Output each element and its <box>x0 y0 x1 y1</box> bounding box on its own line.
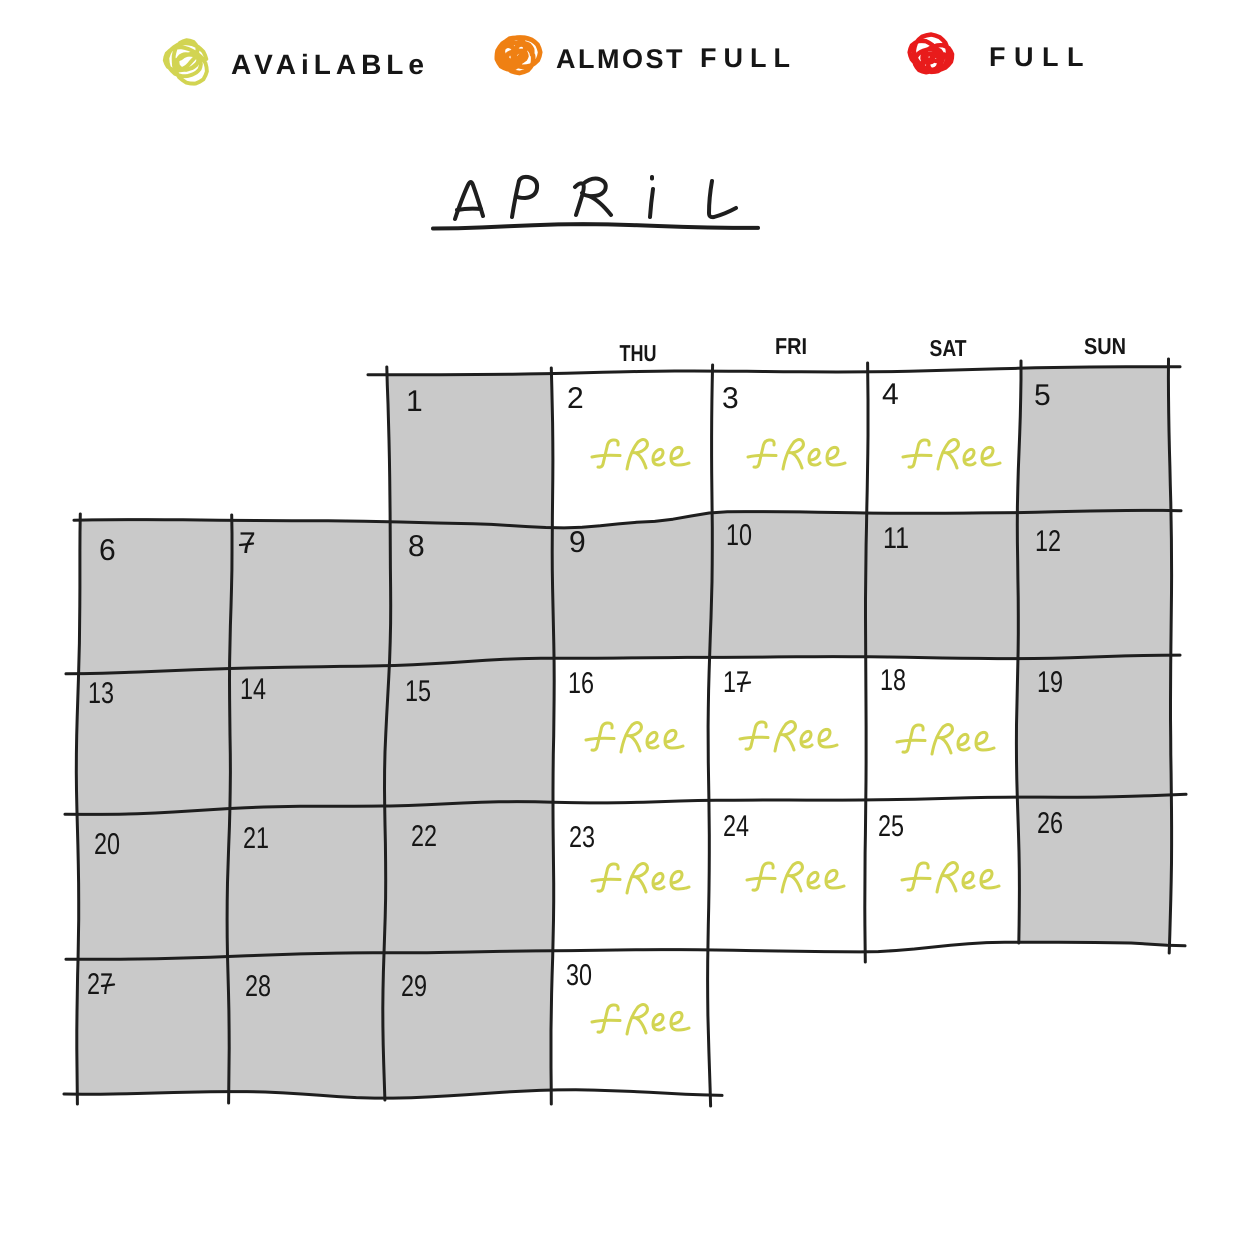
svg-text:16: 16 <box>568 667 594 700</box>
svg-text:14: 14 <box>240 673 266 706</box>
svg-text:24: 24 <box>723 810 749 843</box>
svg-text:SAT: SAT <box>930 335 967 361</box>
svg-text:21: 21 <box>243 822 269 855</box>
svg-text:4: 4 <box>882 378 899 411</box>
svg-text:18: 18 <box>880 664 906 697</box>
svg-text:26: 26 <box>1037 807 1063 840</box>
svg-text:19: 19 <box>1037 666 1063 699</box>
svg-text:SUN: SUN <box>1084 333 1126 359</box>
svg-text:FRI: FRI <box>775 333 807 359</box>
svg-text:13: 13 <box>88 677 114 710</box>
svg-text:12: 12 <box>1035 525 1061 558</box>
svg-text:ALMOST: ALMOST <box>556 44 685 74</box>
svg-text:10: 10 <box>726 519 752 552</box>
svg-text:23: 23 <box>569 821 595 854</box>
svg-text:28: 28 <box>245 970 271 1003</box>
svg-text:30: 30 <box>566 959 592 992</box>
svg-text:FULL: FULL <box>700 43 797 73</box>
svg-text:6: 6 <box>99 534 116 567</box>
svg-text:11: 11 <box>883 522 909 555</box>
svg-text:3: 3 <box>722 382 739 415</box>
svg-text:22: 22 <box>411 820 437 853</box>
svg-text:2: 2 <box>567 382 584 415</box>
svg-text:15: 15 <box>405 675 431 708</box>
svg-text:THU: THU <box>620 340 657 366</box>
svg-text:AVAiLABLe: AVAiLABLe <box>231 49 429 80</box>
svg-text:5: 5 <box>1034 379 1051 412</box>
svg-text:1: 1 <box>406 385 423 418</box>
svg-text:29: 29 <box>401 970 427 1003</box>
svg-text:20: 20 <box>94 828 120 861</box>
svg-text:FULL: FULL <box>989 42 1092 72</box>
svg-text:8: 8 <box>408 530 425 563</box>
svg-text:25: 25 <box>878 810 904 843</box>
svg-text:9: 9 <box>569 526 586 559</box>
